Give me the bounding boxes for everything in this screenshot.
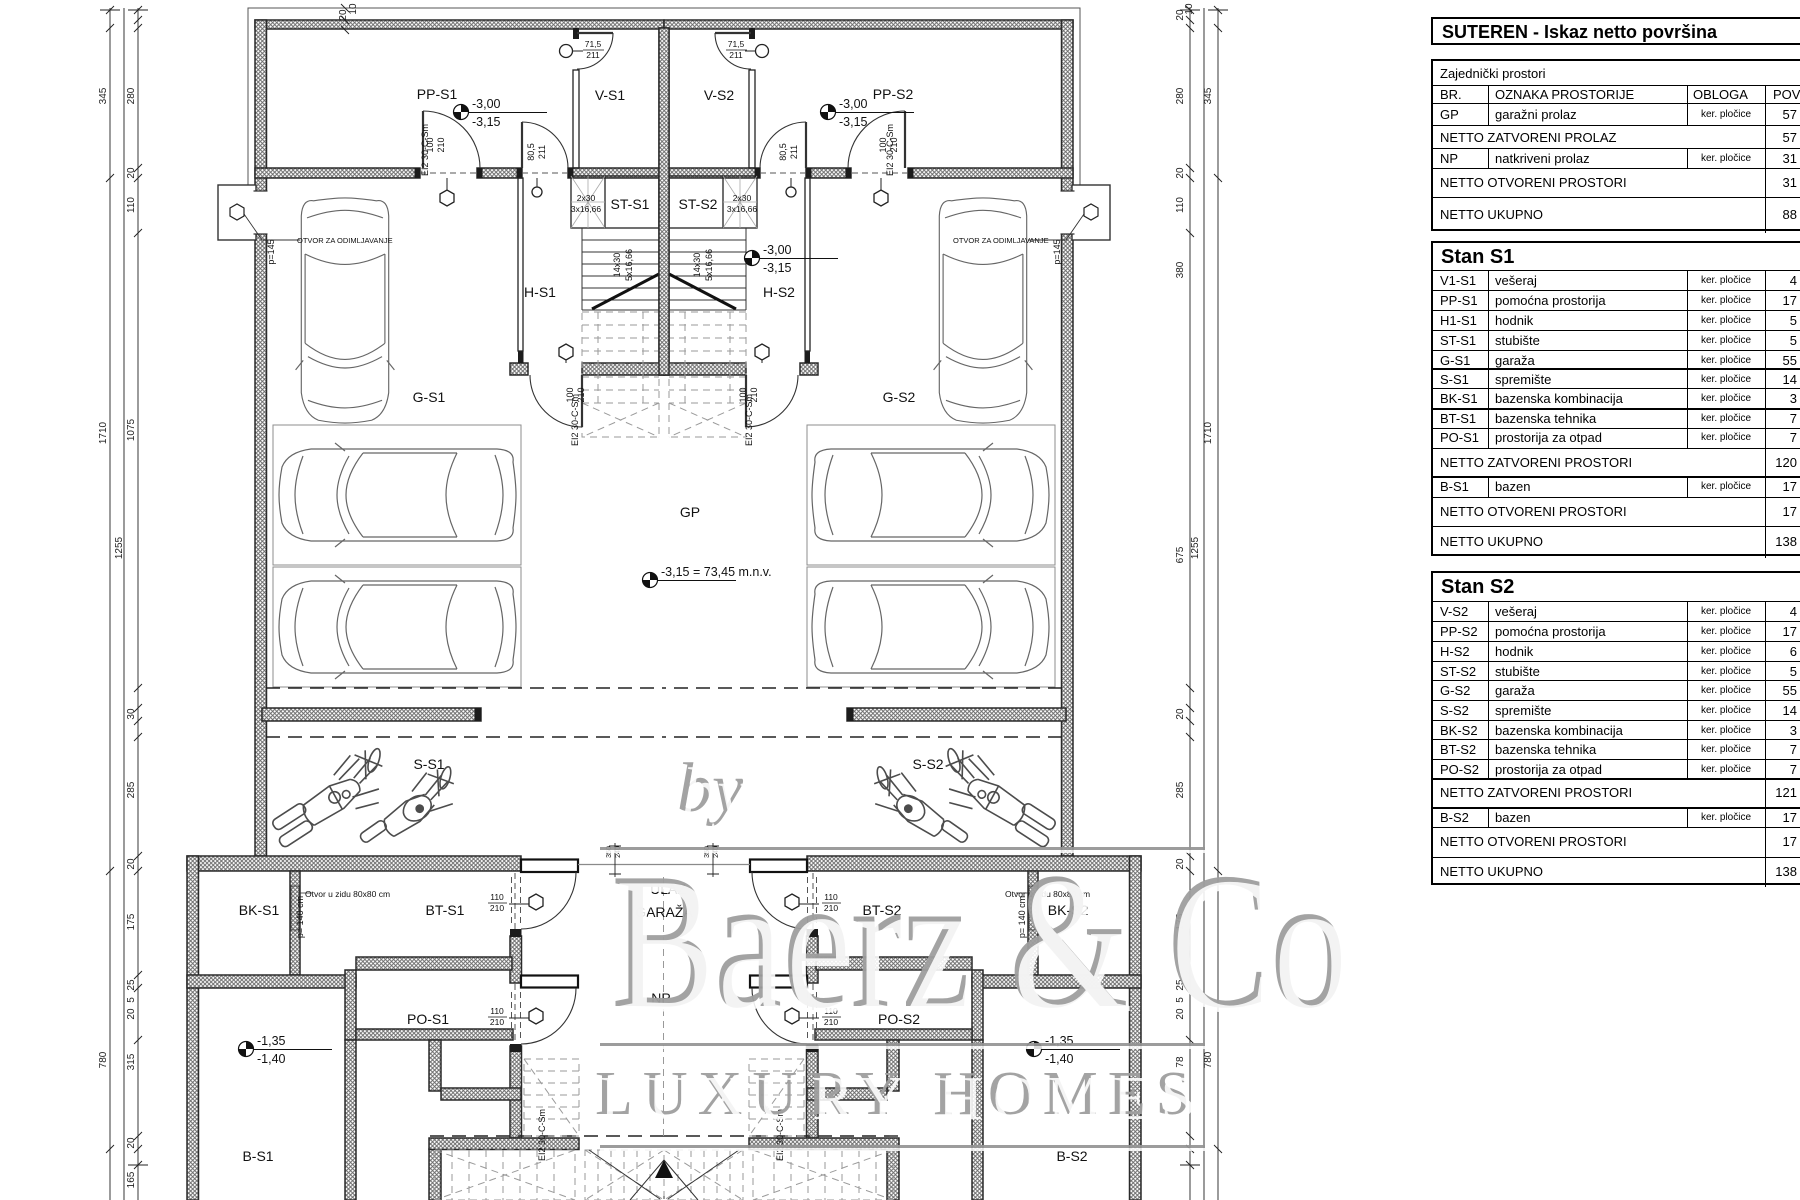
svg-text:14x30: 14x30 bbox=[612, 253, 622, 278]
svg-text:20: 20 bbox=[1175, 708, 1186, 720]
svg-text:25: 25 bbox=[126, 979, 137, 991]
svg-text:-3,15: -3,15 bbox=[472, 115, 501, 129]
svg-text:80,5: 80,5 bbox=[778, 143, 788, 161]
svg-text:1710: 1710 bbox=[1203, 421, 1214, 444]
svg-text:280: 280 bbox=[126, 87, 137, 104]
svg-text:211: 211 bbox=[789, 145, 799, 159]
svg-text:1710: 1710 bbox=[98, 421, 109, 444]
svg-text:ST-S1: ST-S1 bbox=[611, 196, 650, 212]
svg-text:210: 210 bbox=[436, 137, 446, 152]
svg-text:H-S2: H-S2 bbox=[763, 284, 795, 300]
svg-text:-1,40: -1,40 bbox=[257, 1052, 286, 1066]
svg-text:110: 110 bbox=[126, 197, 137, 213]
svg-text:EI2 30-C-Sm: EI2 30-C-Sm bbox=[885, 124, 895, 176]
svg-text:Otvor u zidu 80x80 cm: Otvor u zidu 80x80 cm bbox=[305, 889, 390, 899]
svg-text:EI2 30-C-Sm: EI2 30-C-Sm bbox=[570, 394, 580, 446]
svg-text:285: 285 bbox=[1175, 781, 1186, 798]
svg-text:GP: GP bbox=[680, 504, 700, 520]
svg-text:3x16,66: 3x16,66 bbox=[727, 204, 758, 214]
svg-text:V-S1: V-S1 bbox=[595, 87, 626, 103]
svg-text:S-S1: S-S1 bbox=[413, 756, 444, 772]
svg-text:20: 20 bbox=[126, 1008, 137, 1020]
svg-text:BT-S1: BT-S1 bbox=[426, 902, 465, 918]
svg-text:ST-S2: ST-S2 bbox=[679, 196, 718, 212]
svg-text:110: 110 bbox=[490, 892, 504, 902]
svg-text:S-S2: S-S2 bbox=[912, 756, 943, 772]
svg-text:3x16,66: 3x16,66 bbox=[571, 204, 602, 214]
svg-text:345: 345 bbox=[1203, 87, 1214, 104]
svg-text:211: 211 bbox=[586, 50, 600, 60]
svg-text:210: 210 bbox=[490, 903, 504, 913]
svg-text:p= 140 cm: p= 140 cm bbox=[295, 896, 305, 938]
svg-text:10: 10 bbox=[348, 3, 359, 15]
svg-text:10: 10 bbox=[1184, 3, 1195, 15]
svg-text:EI2 30-C-Sm: EI2 30-C-Sm bbox=[420, 124, 430, 176]
svg-text:5x16,66: 5x16,66 bbox=[704, 249, 714, 281]
svg-text:G-S2: G-S2 bbox=[883, 389, 916, 405]
svg-text:110: 110 bbox=[1175, 197, 1186, 213]
svg-text:30: 30 bbox=[126, 708, 137, 720]
svg-text:1075: 1075 bbox=[126, 418, 137, 441]
svg-text:-3,15: -3,15 bbox=[763, 261, 792, 275]
svg-text:EI2 30-C-Sm: EI2 30-C-Sm bbox=[537, 1109, 547, 1161]
svg-text:EI2 30-C-Sm: EI2 30-C-Sm bbox=[744, 394, 754, 446]
svg-text:20: 20 bbox=[1175, 167, 1186, 179]
svg-text:H-S1: H-S1 bbox=[524, 284, 556, 300]
svg-text:B-S1: B-S1 bbox=[242, 1148, 273, 1164]
svg-text:-3,15: -3,15 bbox=[839, 115, 868, 129]
svg-text:675: 675 bbox=[1175, 546, 1186, 563]
svg-text:PP-S2: PP-S2 bbox=[873, 86, 914, 102]
svg-text:175: 175 bbox=[126, 913, 137, 930]
svg-text:2x30: 2x30 bbox=[733, 193, 752, 203]
svg-text:14x30: 14x30 bbox=[692, 253, 702, 278]
svg-text:-3,00: -3,00 bbox=[763, 243, 792, 257]
svg-text:380: 380 bbox=[1175, 261, 1186, 278]
svg-text:210: 210 bbox=[490, 1017, 504, 1027]
svg-text:-1,35: -1,35 bbox=[257, 1034, 286, 1048]
svg-text:OTVOR ZA ODIMLJAVANJE: OTVOR ZA ODIMLJAVANJE bbox=[297, 236, 393, 245]
svg-text:-3,00: -3,00 bbox=[472, 97, 501, 111]
svg-text:2x30: 2x30 bbox=[577, 193, 596, 203]
svg-text:20: 20 bbox=[126, 1137, 137, 1149]
svg-text:165: 165 bbox=[126, 1171, 137, 1188]
svg-text:1255: 1255 bbox=[114, 536, 125, 559]
svg-text:5: 5 bbox=[126, 997, 137, 1003]
svg-text:110: 110 bbox=[490, 1006, 504, 1016]
svg-text:20: 20 bbox=[126, 858, 137, 870]
svg-text:315: 315 bbox=[126, 1053, 137, 1070]
svg-text:G-S1: G-S1 bbox=[413, 389, 446, 405]
svg-text:80,5: 80,5 bbox=[526, 143, 536, 161]
svg-text:211: 211 bbox=[537, 145, 547, 159]
svg-text:211: 211 bbox=[729, 50, 743, 60]
svg-text:345: 345 bbox=[98, 87, 109, 104]
svg-text:p=145: p=145 bbox=[1052, 239, 1062, 264]
svg-text:780: 780 bbox=[98, 1051, 109, 1068]
svg-text:-3,15 = 73,45 m.n.v.: -3,15 = 73,45 m.n.v. bbox=[661, 565, 772, 579]
svg-text:1255: 1255 bbox=[1190, 536, 1201, 559]
svg-text:71,5: 71,5 bbox=[728, 39, 745, 49]
svg-text:PO-S1: PO-S1 bbox=[407, 1011, 449, 1027]
svg-text:5x16,66: 5x16,66 bbox=[624, 249, 634, 281]
svg-text:OTVOR ZA ODIMLJAVANJE: OTVOR ZA ODIMLJAVANJE bbox=[953, 236, 1049, 245]
svg-text:p=145: p=145 bbox=[266, 239, 276, 264]
svg-text:71,5: 71,5 bbox=[585, 39, 602, 49]
svg-text:20: 20 bbox=[126, 167, 137, 179]
svg-text:-3,00: -3,00 bbox=[839, 97, 868, 111]
svg-text:285: 285 bbox=[126, 781, 137, 798]
svg-text:PP-S1: PP-S1 bbox=[417, 86, 458, 102]
svg-text:280: 280 bbox=[1175, 87, 1186, 104]
svg-text:BK-S1: BK-S1 bbox=[239, 902, 280, 918]
svg-text:V-S2: V-S2 bbox=[704, 87, 735, 103]
